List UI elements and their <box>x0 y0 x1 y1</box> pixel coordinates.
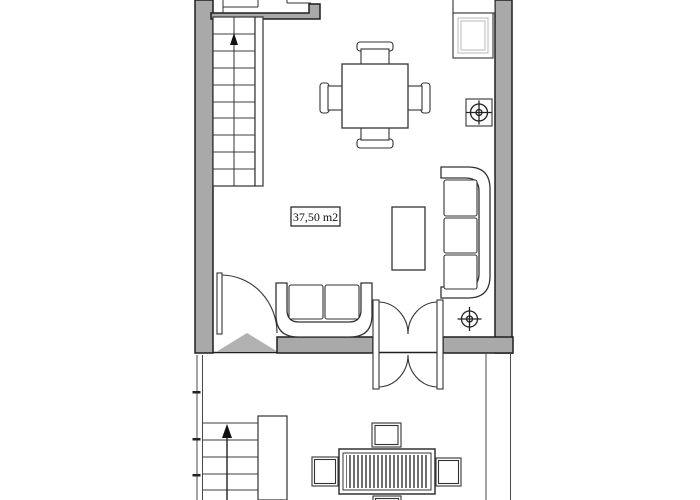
floor-plan-canvas: 37,50 m2 <box>0 0 700 500</box>
railing-tick <box>193 474 201 477</box>
floor-plan-drawing: 37,50 m2 <box>0 0 700 500</box>
double-door-left-jamb <box>373 300 379 389</box>
sofa-cushion <box>444 180 477 216</box>
terrace-stair-landing <box>258 416 287 500</box>
outdoor-table <box>339 449 435 494</box>
loveseat-cushion <box>325 285 359 319</box>
outdoor-chair-bottom <box>373 496 401 500</box>
entry-door-leaf <box>217 273 222 334</box>
sofa-cushion <box>444 255 477 289</box>
dining-table <box>342 64 408 128</box>
stair-railing <box>255 17 263 186</box>
dining-chair-right <box>407 83 430 113</box>
outdoor-chair-top <box>372 423 401 447</box>
kitchen-counter <box>453 0 495 13</box>
light-fixture-boxed-icon <box>466 99 492 126</box>
wall-left <box>195 0 213 353</box>
kitchen-sink-unit <box>453 13 493 58</box>
coffee-table <box>392 207 425 270</box>
dining-chair-top <box>357 42 393 65</box>
railing-tick <box>193 438 201 441</box>
staircase-upper <box>213 17 263 186</box>
sofa-cushion <box>444 218 477 253</box>
area-label: 37,50 m2 <box>291 207 340 226</box>
wall-bottom-center <box>277 337 373 353</box>
outdoor-chair-right <box>436 458 461 486</box>
dining-chair-left <box>320 83 343 113</box>
loveseat-cushion <box>289 285 323 319</box>
wall-right <box>495 0 512 353</box>
railing-tick <box>193 391 201 394</box>
double-door-right-jamb <box>437 300 443 389</box>
area-label-text: 37,50 m2 <box>293 210 338 224</box>
outdoor-table-slats <box>346 455 428 488</box>
outdoor-chair-left <box>312 457 338 486</box>
wall-bottom-right <box>443 337 513 353</box>
